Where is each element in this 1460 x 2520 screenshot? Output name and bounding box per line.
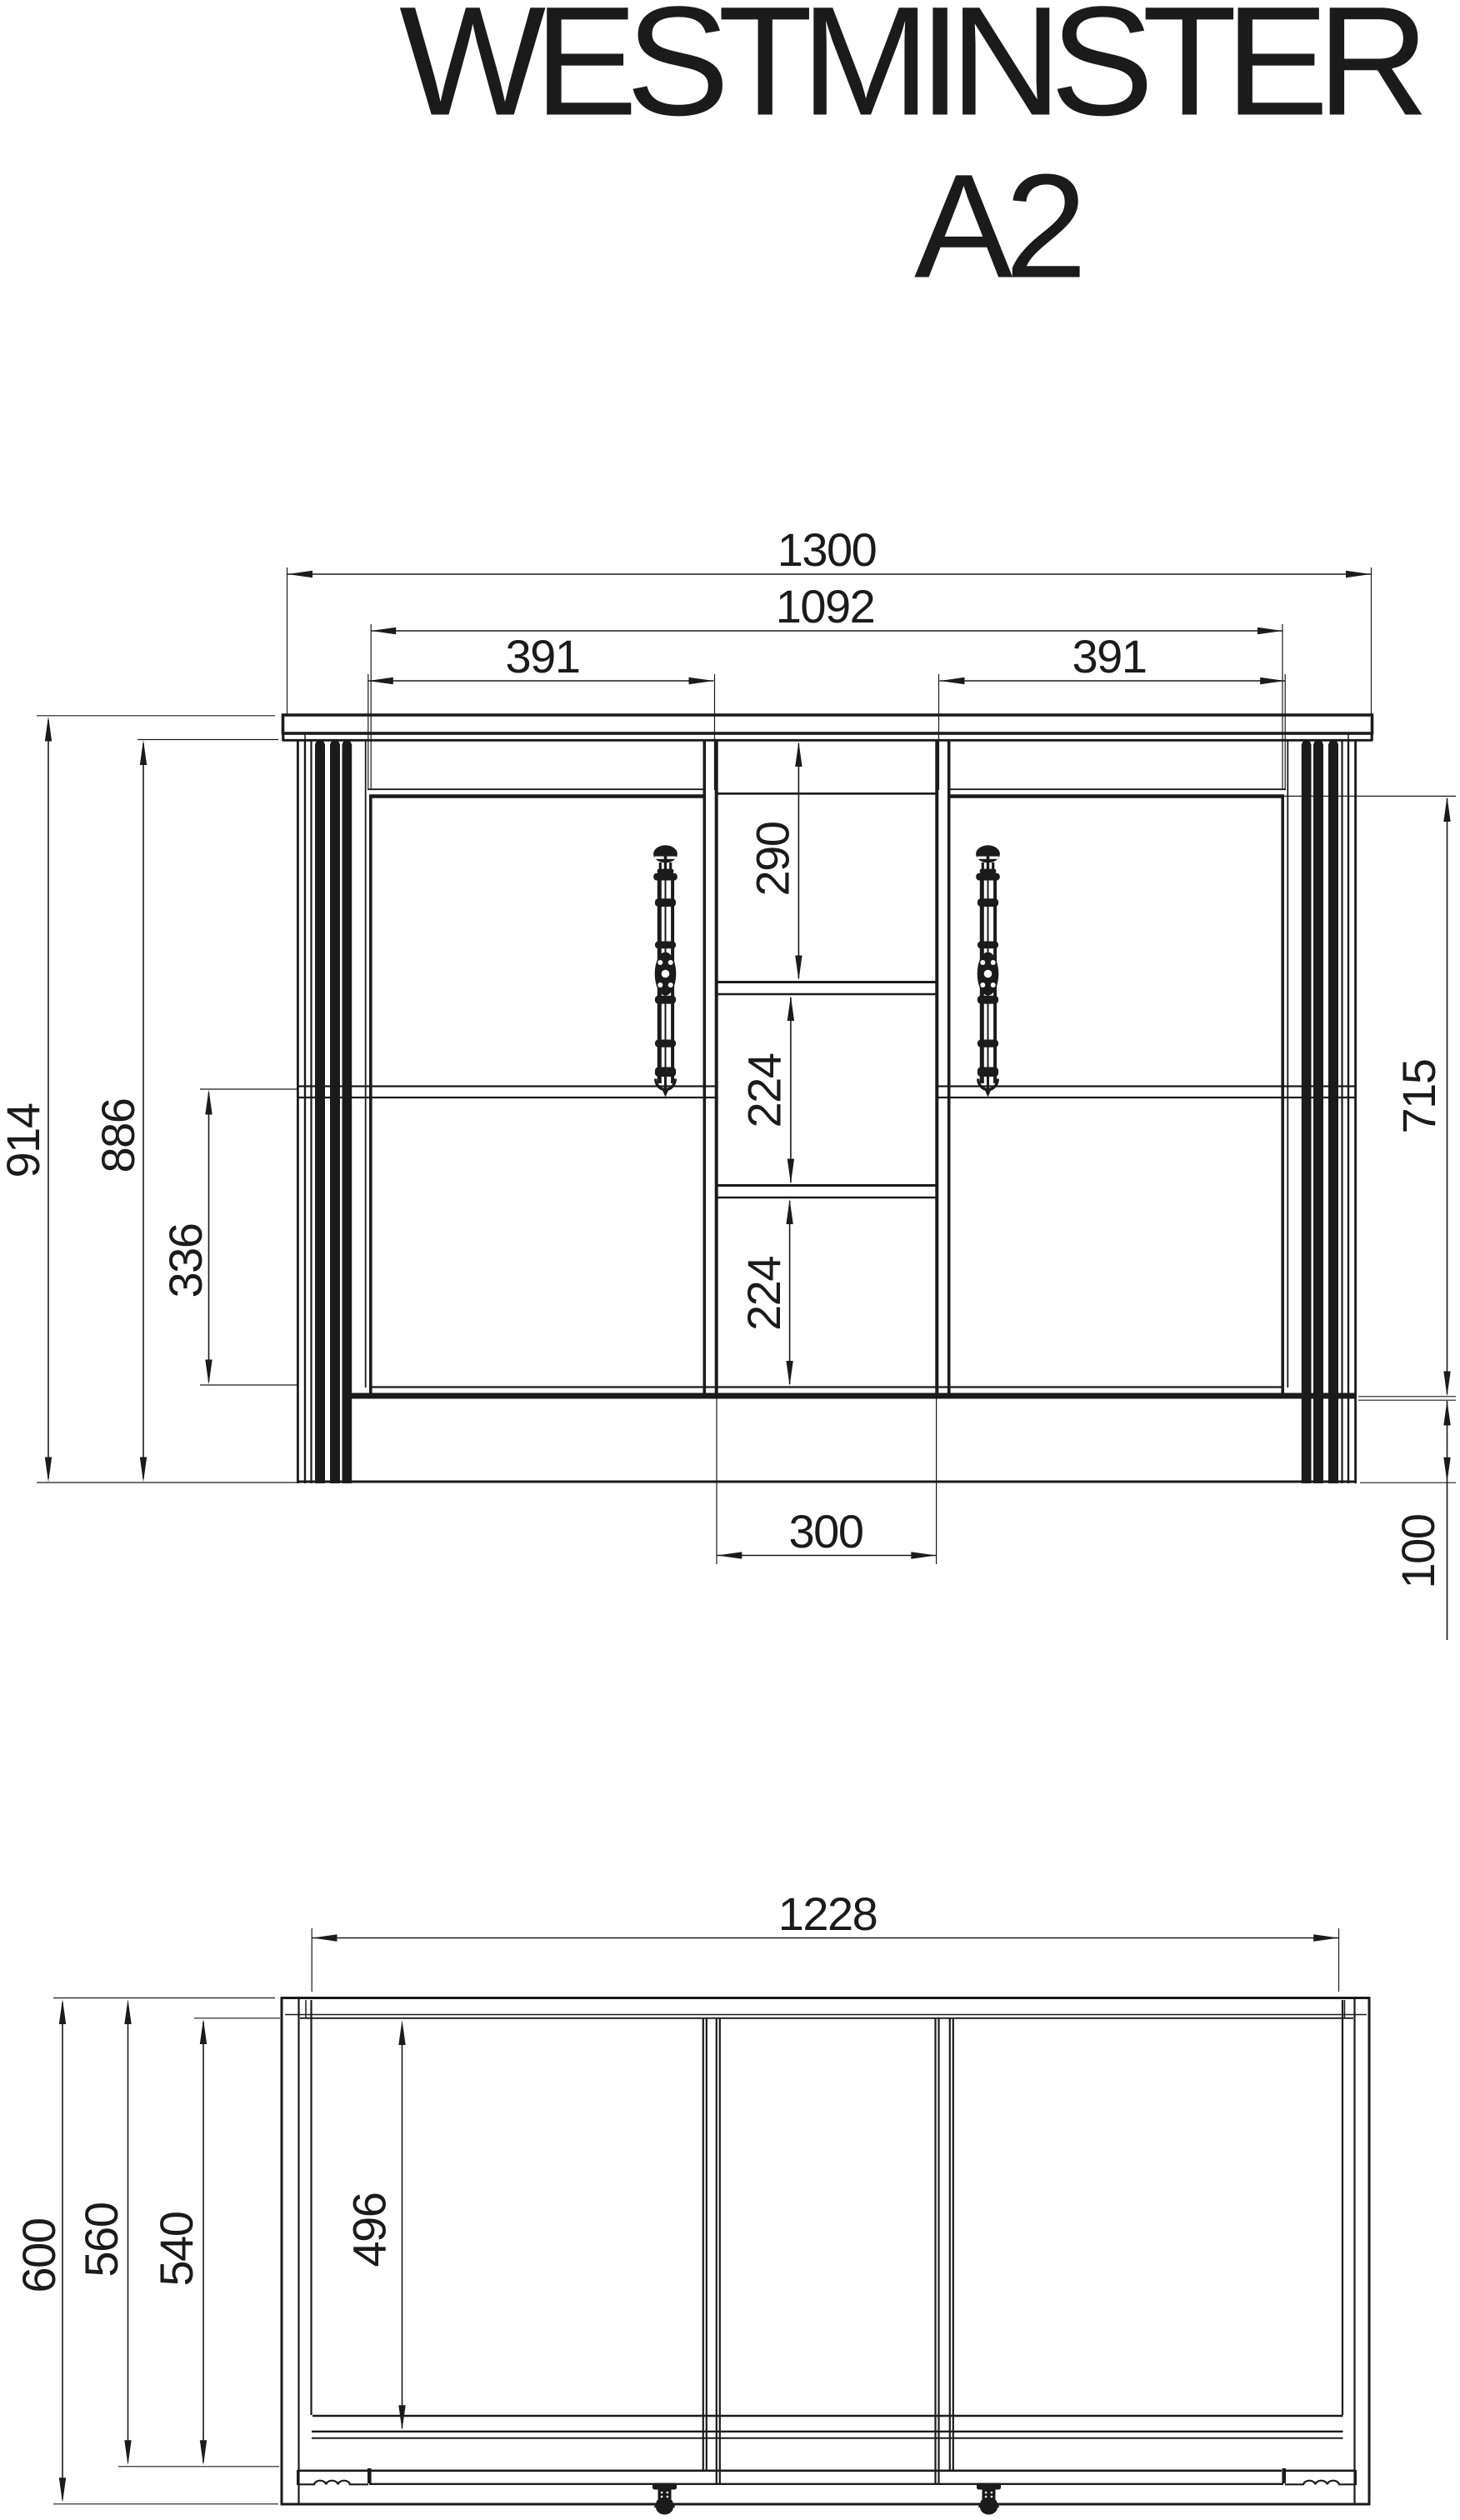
svg-text:715: 715	[1392, 1060, 1445, 1134]
svg-text:WESTMINSTER: WESTMINSTER	[399, 0, 1422, 148]
svg-text:560: 560	[75, 2203, 127, 2277]
svg-text:540: 540	[150, 2212, 202, 2287]
svg-text:336: 336	[159, 1224, 212, 1298]
svg-text:224: 224	[737, 1257, 790, 1331]
svg-text:1228: 1228	[778, 1887, 877, 1940]
svg-text:886: 886	[92, 1099, 144, 1173]
svg-text:1092: 1092	[776, 580, 875, 632]
svg-text:A2: A2	[914, 143, 1080, 309]
svg-text:391: 391	[1072, 630, 1147, 682]
svg-text:290: 290	[747, 822, 799, 897]
svg-text:914: 914	[0, 1103, 49, 1177]
svg-text:100: 100	[1392, 1515, 1444, 1589]
svg-text:496: 496	[343, 2193, 396, 2267]
svg-text:1300: 1300	[777, 523, 877, 576]
svg-text:391: 391	[506, 630, 580, 682]
svg-text:600: 600	[12, 2219, 65, 2293]
svg-text:224: 224	[738, 1053, 791, 1127]
svg-text:300: 300	[789, 1505, 863, 1557]
